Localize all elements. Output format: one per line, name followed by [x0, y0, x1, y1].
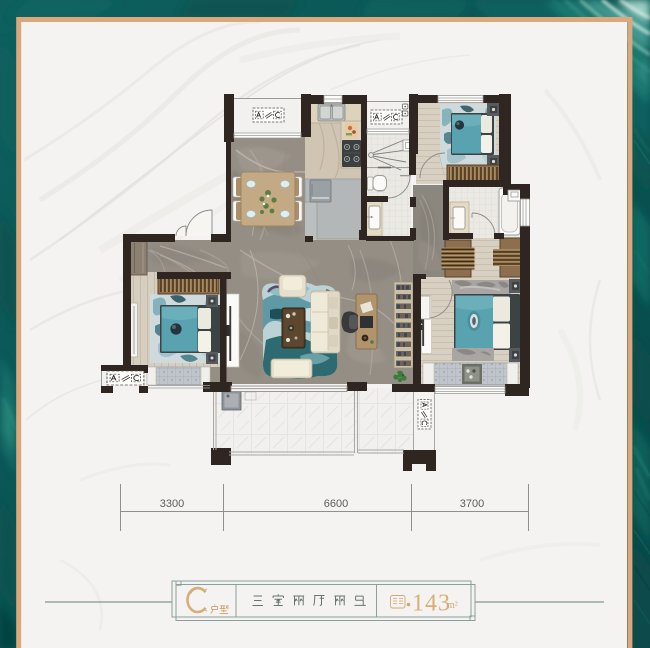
svg-text:m²: m² — [447, 600, 458, 611]
svg-text:3300: 3300 — [160, 498, 184, 510]
svg-text:3700: 3700 — [460, 498, 484, 510]
svg-text:6600: 6600 — [324, 498, 348, 510]
svg-text:143: 143 — [412, 591, 451, 617]
